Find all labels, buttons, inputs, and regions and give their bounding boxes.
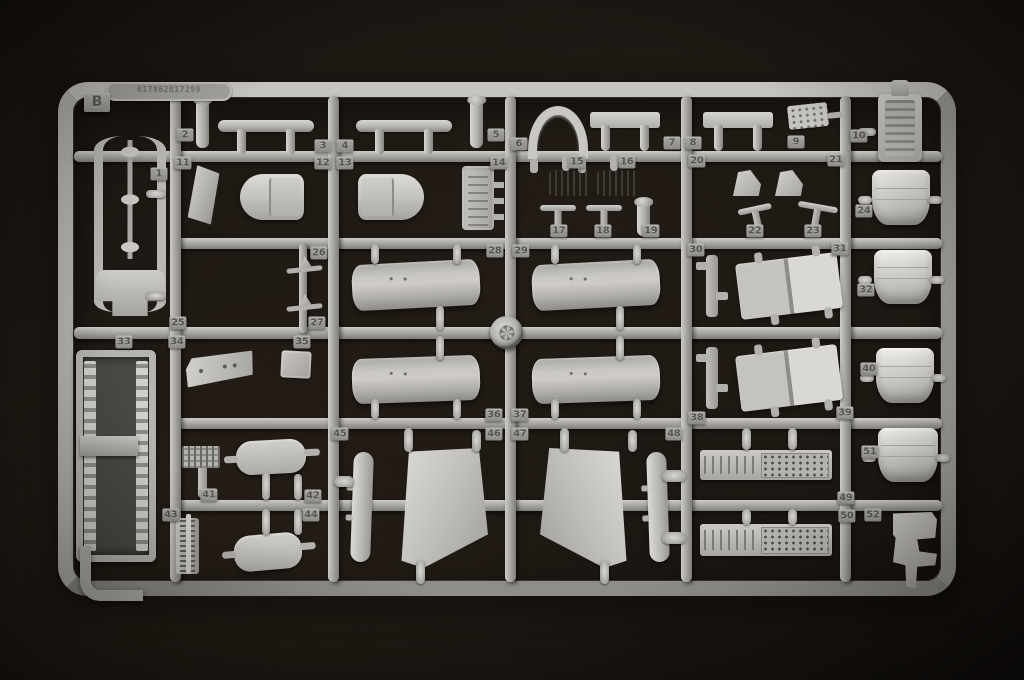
part-number-tag-37: 37 [511,409,528,422]
sprue-part-27 [285,292,323,314]
sprue-part-36 [351,355,480,404]
sprue-part [788,428,797,450]
sprue-runner [170,418,942,429]
sprue-part [404,428,413,452]
sprue-part-16 [597,170,639,196]
sprue-part [416,560,425,584]
part-number-tag-50: 50 [838,510,855,523]
photo-background: 1234567891011121314151617181920212223242… [0,0,1024,680]
sprue-part [703,112,773,128]
part-number-tag-29: 29 [512,245,529,258]
sprue-part-38 [706,347,718,409]
sprue-part [146,292,166,300]
part-number-tag-19: 19 [642,225,659,238]
part-number-tag-34: 34 [168,336,185,349]
sprue-part [453,399,461,419]
sprue-part [930,276,944,284]
part-number-tag-8: 8 [685,137,702,150]
part-number-tag-27: 27 [308,317,325,330]
sprue-part-1 [94,136,166,312]
part-number-tag-52: 52 [864,509,881,522]
sprue-part-5 [470,98,483,148]
sprue-part-51 [878,428,938,482]
sprue-part [662,470,686,482]
sprue-part [560,428,569,452]
part-number-tag-11: 11 [174,157,191,170]
sprue-part [616,306,624,330]
sprue-letter-tab: B [84,93,110,112]
sprue-part [551,244,559,264]
sprue-part [262,472,270,500]
sprue-part-24 [872,170,930,225]
sprue-part [436,306,444,330]
part-number-tag-28: 28 [486,245,503,258]
sprue-part-42 [235,438,307,476]
sprue-part-3 [218,120,314,132]
sprue-part-37 [531,355,660,404]
part-number-tag-24: 24 [855,205,872,218]
part-number-tag-33: 33 [115,336,132,349]
sprue-part-29 [531,259,661,312]
sprue-part-28 [351,259,481,312]
part-number-tag-3: 3 [315,140,332,153]
sprue-part-32 [874,250,932,304]
sprue-part-10 [878,94,922,162]
sprue-part [262,509,270,535]
sprue-part [294,474,302,500]
sprue-part [80,436,138,456]
sprue-part [932,374,946,382]
sprue-part-2 [196,98,209,148]
sprue-part-33 [76,350,156,562]
part-number-tag-10: 10 [850,130,867,143]
sprue-part [662,532,686,544]
part-number-tag-51: 51 [861,446,878,459]
sprue-part [633,244,641,264]
part-number-tag-47: 47 [511,428,528,441]
part-number-tag-41: 41 [200,489,217,502]
sprue-part [472,430,481,452]
sprue-part [633,399,641,419]
part-number-tag-38: 38 [688,412,705,425]
part-number-tag-48: 48 [665,428,682,441]
part-number-tag-32: 32 [857,284,874,297]
sprue-part [788,509,797,525]
sprue-part [453,244,461,264]
sprue-part-8 [590,112,660,128]
part-number-tag-49: 49 [837,492,854,505]
part-number-tag-31: 31 [831,243,848,256]
sprue-part-43 [176,518,199,574]
sprue-part [551,399,559,419]
sprue-part [616,336,624,360]
part-number-tag-5: 5 [488,129,505,142]
part-number-tag-2: 2 [177,129,194,142]
part-number-tag-6: 6 [511,138,528,151]
sprue-part-44 [233,531,304,573]
sprue-part-48 [646,452,670,563]
sprue-part [294,509,302,535]
sprue-part-35 [280,350,311,379]
part-number-tag-46: 46 [485,428,502,441]
sprue-part-15 [549,170,591,196]
sprue-runner [681,96,692,582]
part-number-tag-42: 42 [304,490,321,503]
part-number-tag-26: 26 [310,247,327,260]
sprue-part [334,476,354,487]
part-number-tag-21: 21 [827,154,844,167]
sprue-part-14 [462,166,494,230]
part-number-tag-16: 16 [618,156,635,169]
part-number-tag-9: 9 [788,136,805,149]
part-number-tag-18: 18 [594,225,611,238]
part-number-tag-17: 17 [550,225,567,238]
sprue-part [928,196,942,204]
part-number-tag-14: 14 [490,157,507,170]
part-number-tag-22: 22 [746,225,763,238]
sprue-part-49 [700,450,832,480]
part-number-tag-35: 35 [293,336,310,349]
part-number-tag-7: 7 [664,137,681,150]
part-number-tag-40: 40 [860,363,877,376]
sprue-part [600,560,609,584]
part-number-tag-4: 4 [337,140,354,153]
sprue-part [146,190,166,198]
part-number-tag-30: 30 [687,244,704,257]
sprue-part-9 [787,102,829,130]
part-number-tag-44: 44 [302,509,319,522]
sprue-part [628,430,637,452]
sprue-part-13 [358,174,424,220]
sprue-part [490,316,523,349]
sprue-part [436,336,444,360]
sprue-part [371,399,379,419]
part-number-tag-12: 12 [314,157,331,170]
mold-number-plate: 817862B17299 [106,82,232,101]
sprue-part [371,244,379,264]
sprue-part-50 [700,524,832,556]
part-number-tag-39: 39 [836,407,853,420]
sprue-part [742,509,751,525]
sprue-part [858,196,872,204]
part-number-tag-45: 45 [331,428,348,441]
part-number-tag-23: 23 [804,225,821,238]
sprue-part-30 [706,255,718,317]
sprue-part-45 [350,452,374,563]
part-number-tag-1: 1 [151,168,168,181]
sprue-part [742,428,751,450]
part-number-tag-13: 13 [336,157,353,170]
part-number-tag-25: 25 [169,317,186,330]
sprue-part-12 [240,174,304,220]
sprue-part [936,454,950,462]
sprue-part [80,546,143,601]
part-number-tag-43: 43 [162,509,179,522]
part-number-tag-20: 20 [688,155,705,168]
part-number-tag-15: 15 [568,156,585,169]
part-number-tag-36: 36 [485,409,502,422]
sprue-part-40 [876,348,934,403]
sprue-part-4 [356,120,452,132]
